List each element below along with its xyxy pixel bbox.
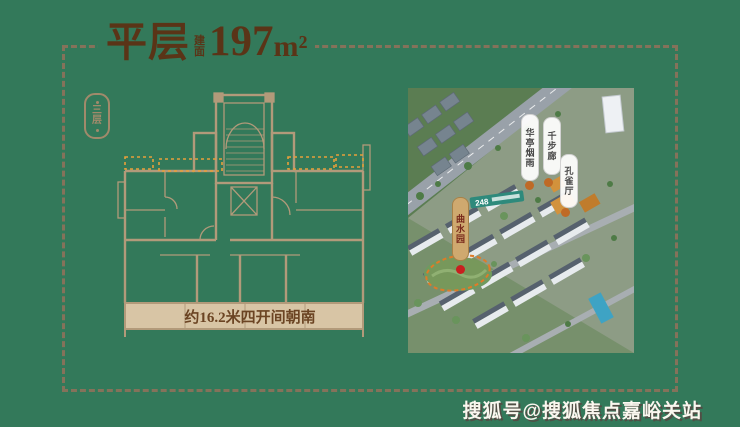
floor-plan-svg: 约16.2米四开间朝南 [100, 85, 380, 343]
floor-plan: 约16.2米四开间朝南 [100, 85, 380, 348]
white-tower [602, 95, 624, 133]
banner-number: 248 [475, 197, 490, 208]
plan-inner-walls [118, 93, 370, 255]
stair-treads [226, 129, 264, 171]
watermark-credit: 搜狐号@搜狐焦点嘉峪关站 [462, 396, 702, 423]
badge-dot-top [96, 101, 99, 104]
door-arc-2 [200, 226, 214, 240]
stair-arc [226, 123, 264, 149]
marker-huating-yanyu: 华亭烟雨 [521, 114, 539, 181]
marker-dot-kongqueting [561, 208, 570, 217]
marker-dot-qushuiyuan [456, 265, 465, 274]
title-main: 平层 [106, 22, 190, 63]
marker-dot-huating [525, 181, 534, 190]
marker-dot-qianbulang [544, 178, 553, 187]
plan-outer-walls [125, 95, 363, 303]
title-sub-vertical: 建面 [194, 36, 206, 59]
title-area-number: 197 [209, 20, 274, 63]
door-arc-1 [272, 197, 290, 215]
page-title: 平层 建面 197 m² [98, 20, 315, 63]
bay-window-highlights [125, 155, 363, 171]
south-balcony-band: 约16.2米四开间朝南 [125, 303, 363, 337]
badge-dot-bottom [96, 129, 99, 132]
marker-qianbulang: 千步廊 [543, 117, 561, 175]
dimension-note: 约16.2米四开间朝南 [184, 308, 315, 326]
title-area-unit: m² [274, 30, 308, 63]
door-arc-3 [165, 197, 177, 209]
aerial-photo: 248 曲水园 华亭烟雨 千步廊 孔雀厅 [408, 88, 634, 353]
marker-qushuiyuan: 曲水园 [452, 197, 469, 261]
marker-kongqueting: 孔雀厅 [560, 154, 578, 208]
